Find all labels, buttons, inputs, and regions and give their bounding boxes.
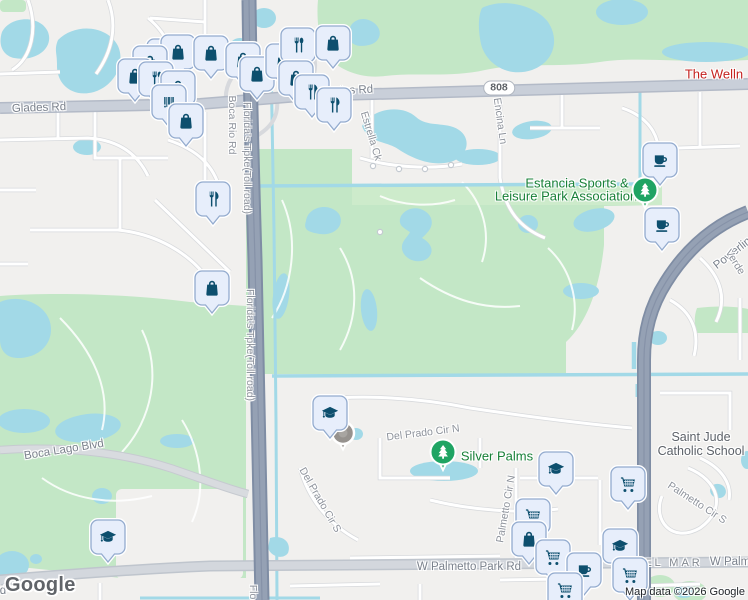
- graduation-cap-pin[interactable]: [308, 389, 352, 441]
- shopping-cart-pin[interactable]: [543, 566, 587, 600]
- graduation-cap-pin[interactable]: [86, 513, 130, 565]
- restaurant-pin[interactable]: [312, 81, 356, 133]
- shopping-bag-pin[interactable]: [190, 264, 234, 316]
- google-logo[interactable]: Google: [5, 574, 76, 597]
- restaurant-pin[interactable]: [191, 175, 235, 227]
- map-attribution: Map data ©2026 Google: [625, 586, 745, 598]
- park-tree-marker[interactable]: [426, 435, 460, 483]
- coffee-pin[interactable]: [640, 201, 684, 253]
- graduation-cap-pin[interactable]: [534, 445, 578, 497]
- shopping-cart-pin[interactable]: [606, 460, 650, 512]
- coffee-pin[interactable]: [638, 136, 682, 188]
- route-shield-808: 808: [483, 81, 515, 96]
- map-canvas[interactable]: 808 Glades RdGlades RdEstrella CkEncina …: [0, 0, 748, 600]
- shopping-bag-pin[interactable]: [164, 97, 208, 149]
